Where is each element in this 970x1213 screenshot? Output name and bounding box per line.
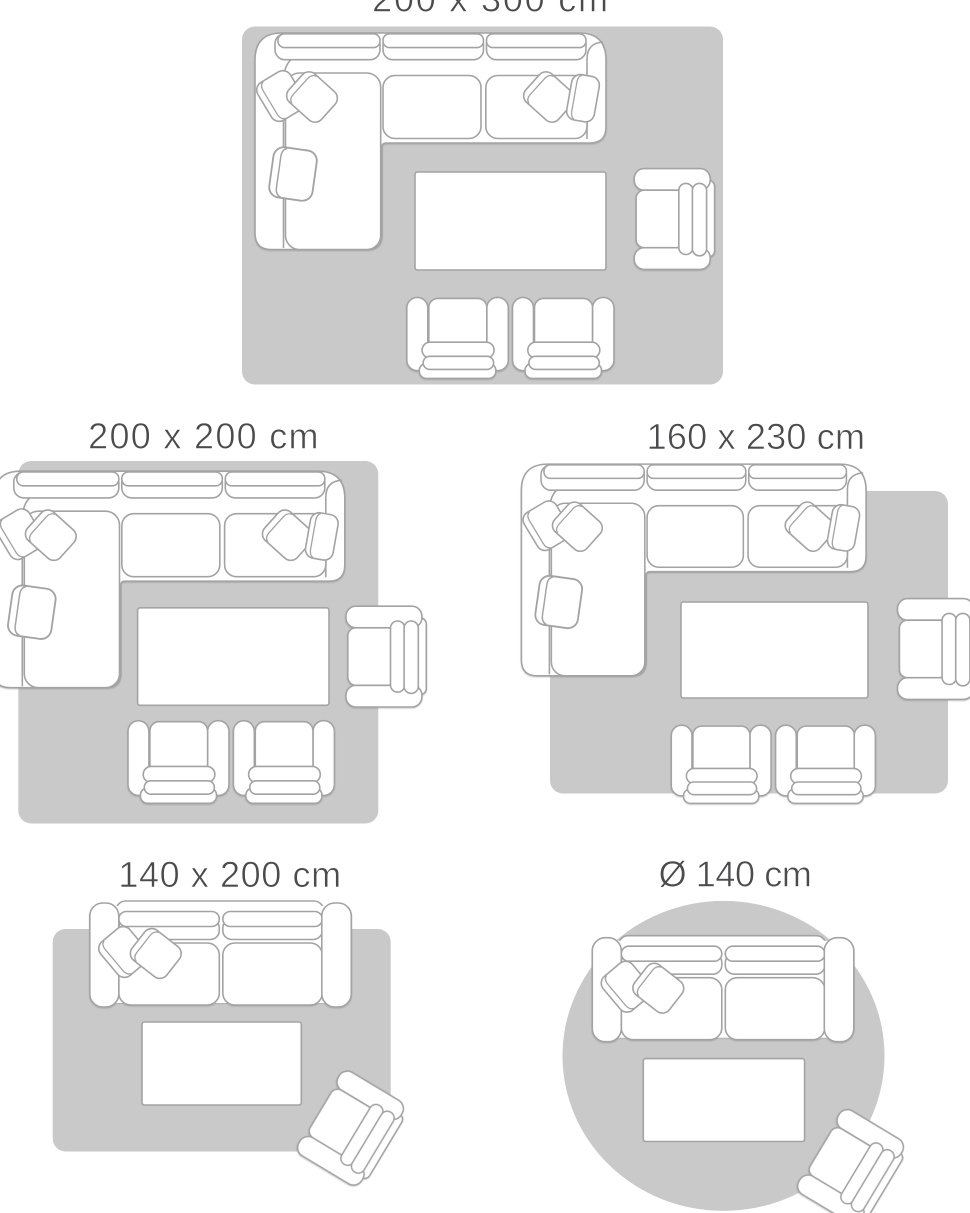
svg-text:160 x 230 cm: 160 x 230 cm xyxy=(647,416,866,457)
svg-text:200 x 300 cm: 200 x 300 cm xyxy=(372,0,610,20)
svg-text:200 x 200 cm: 200 x 200 cm xyxy=(88,416,320,457)
svg-text:140 x 200 cm: 140 x 200 cm xyxy=(118,854,341,895)
svg-text:Ø 140 cm: Ø 140 cm xyxy=(659,854,812,895)
